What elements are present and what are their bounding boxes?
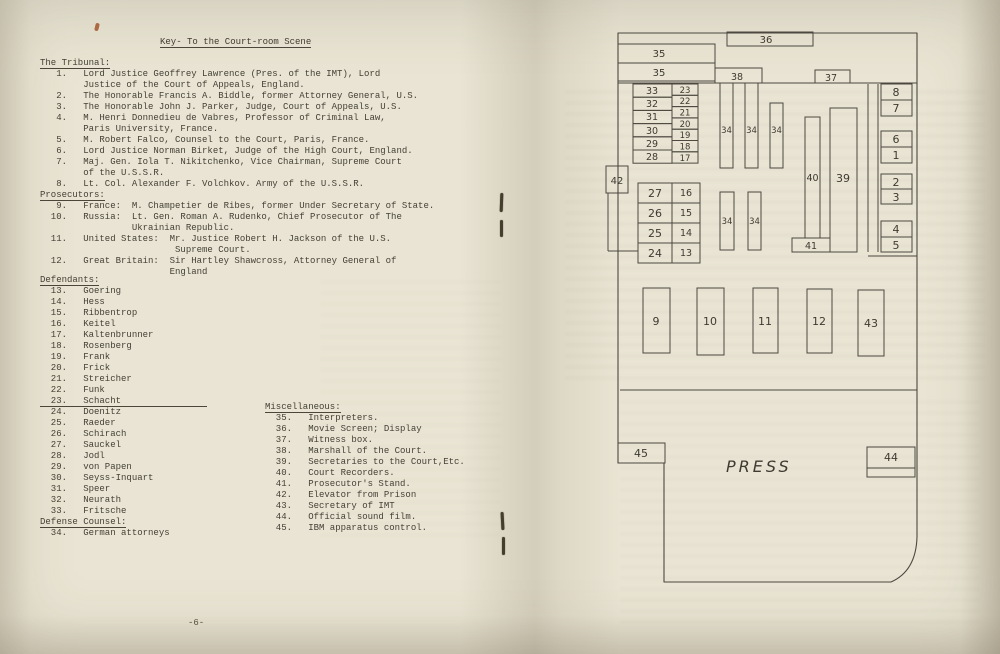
diagram-label-3: 3 [893,191,900,204]
diagram-box-35 [618,63,715,81]
diagram-label-34: 34 [722,217,733,227]
press-label: PRESS [726,457,792,476]
diagram-label-41: 41 [805,241,817,252]
diagram-label-16: 16 [680,188,692,199]
diagram-label-22: 22 [680,97,691,107]
diagram-label-29: 29 [646,139,658,150]
diagram-label-39: 39 [836,172,850,185]
diagram-label-21: 21 [680,109,691,119]
diagram-label-40: 40 [806,173,818,184]
diagram-label-2: 2 [893,176,900,189]
diagram-label-44: 44 [884,451,898,464]
diagram-label-18: 18 [680,143,691,153]
diagram-label-6: 6 [893,133,900,146]
diagram-label-31: 31 [646,112,658,123]
diagram-label-24: 24 [648,247,662,260]
diagram-label-7: 7 [893,102,900,115]
diagram-box [867,468,915,477]
diagram-label-30: 30 [646,126,658,137]
diagram-box-35 [618,44,715,63]
diagram-label-19: 19 [680,131,691,141]
diagram-label-23: 23 [680,86,691,96]
diagram-label-38: 38 [731,72,743,83]
diagram-label-8: 8 [893,86,900,99]
diagram-label-27: 27 [648,187,662,200]
diagram-label-34: 34 [771,126,782,136]
diagram-label-20: 20 [680,120,691,130]
staple-mark [500,220,503,237]
diagram-label-13: 13 [680,248,692,259]
diagram-label-34: 34 [749,217,760,227]
diagram-label-33: 33 [646,86,658,97]
scanned-booklet-spread: { "left_page": { "title": "Key- To the C… [0,0,1000,654]
diagram-label-34: 34 [746,126,757,136]
diagram-label-14: 14 [680,228,692,239]
diagram-label-43: 43 [864,317,878,330]
diagram-label-37: 37 [825,73,837,84]
diagram-label-5: 5 [893,239,900,252]
diagram-label-15: 15 [680,208,692,219]
diagram-label-25: 25 [648,227,662,240]
diagram-label-32: 32 [646,99,658,110]
diagram-label-28: 28 [646,152,658,163]
diagram-label-42: 42 [611,176,624,187]
diagram-label-4: 4 [893,223,900,236]
diagram-label-10: 10 [703,315,717,328]
diagram-label-45: 45 [634,447,648,460]
diagram-label-26: 26 [648,207,662,220]
diagram-label-1: 1 [893,149,900,162]
courtroom-diagram: 3635353837423332313029282322212019181727… [0,0,1000,654]
staple-mark [502,537,505,555]
diagram-label-17: 17 [680,154,691,164]
diagram-label-35: 35 [653,68,666,79]
diagram-label-11: 11 [758,315,772,328]
diagram-label-36: 36 [760,35,773,46]
diagram-label-12: 12 [812,315,826,328]
diagram-label-34: 34 [721,126,732,136]
diagram-label-35: 35 [653,49,666,60]
diagram-outline [618,33,917,582]
diagram-label-9: 9 [653,315,660,328]
